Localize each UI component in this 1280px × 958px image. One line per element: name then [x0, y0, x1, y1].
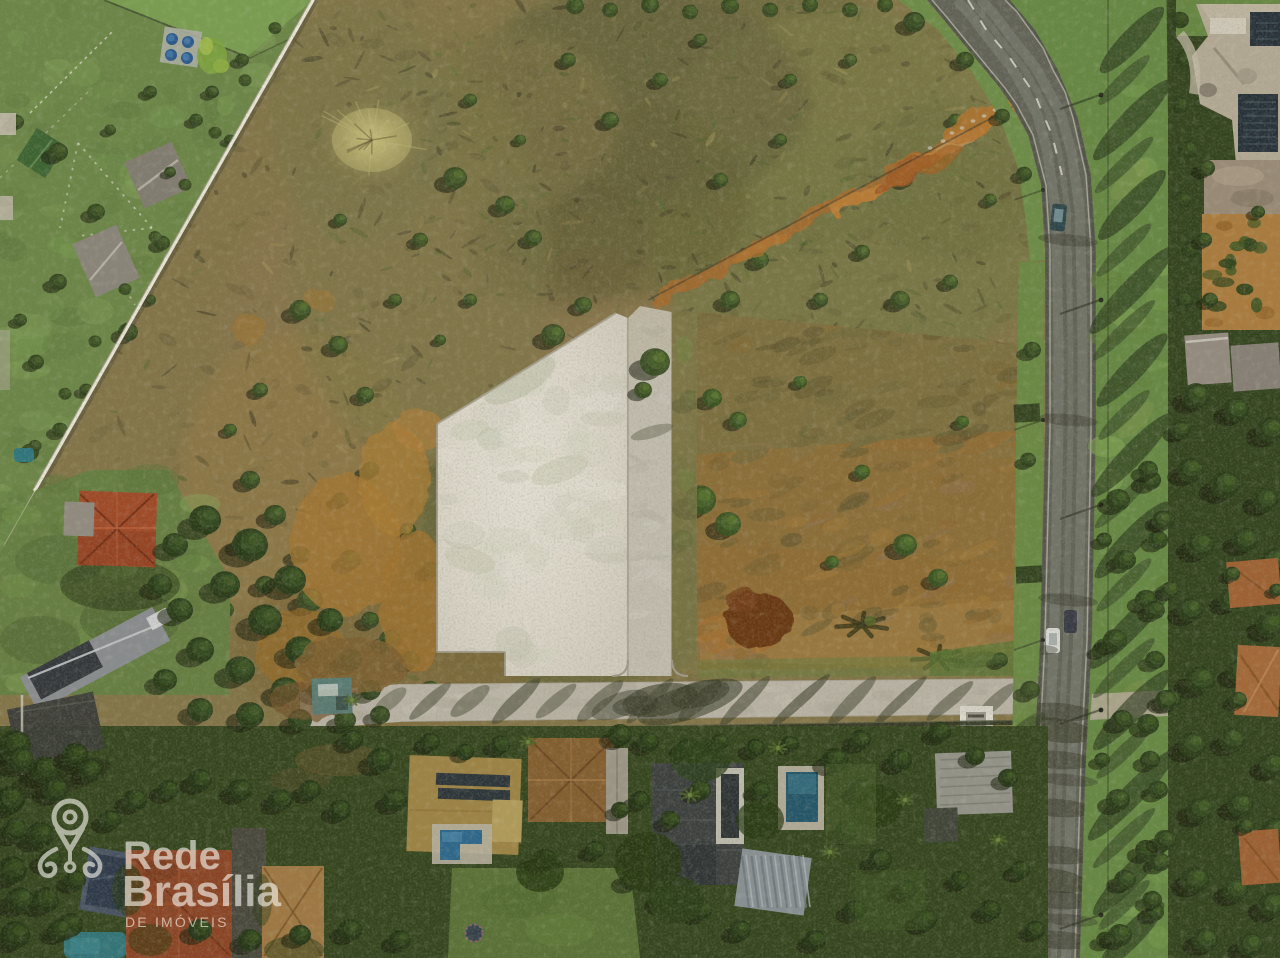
- svg-text:DE IMÓVEIS: DE IMÓVEIS: [125, 914, 229, 930]
- svg-text:Brasília: Brasília: [122, 867, 282, 916]
